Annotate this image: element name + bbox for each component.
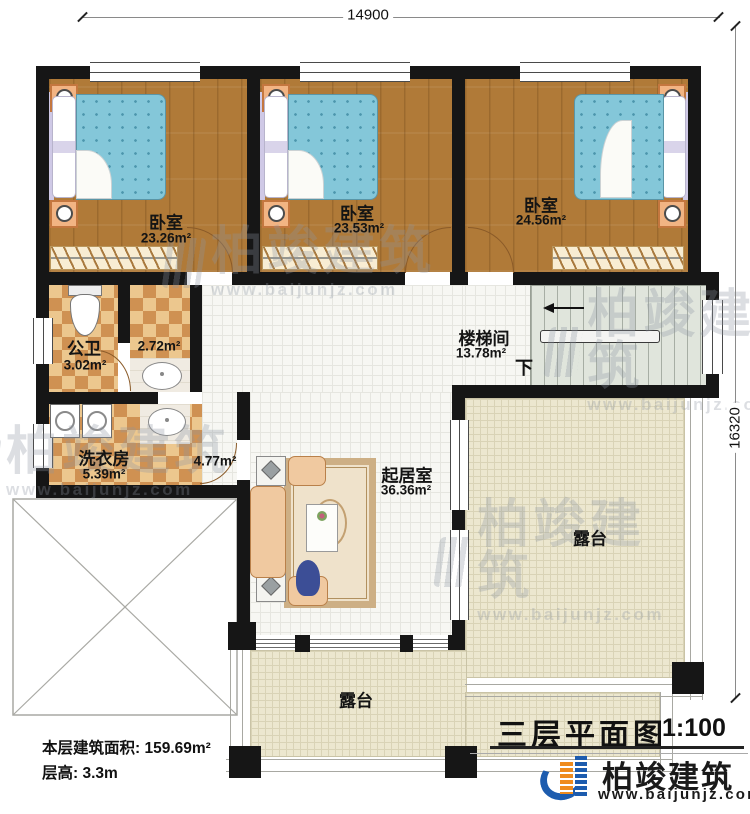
corridor-floor <box>202 285 465 392</box>
laundry-area: 5.39m² <box>83 467 126 482</box>
terrace-right-parapet-line2 <box>702 390 703 700</box>
wall-living-right-1 <box>452 392 465 420</box>
living-corner-column-left <box>228 622 256 650</box>
terrace-right-bottom-line <box>465 684 703 685</box>
coffee-table <box>306 504 338 552</box>
bedroom1-area: 23.26m² <box>141 231 191 246</box>
stairwell-area: 13.78m² <box>456 346 506 361</box>
logo-building-blue <box>575 756 587 796</box>
wall-bathroom-divider <box>118 285 130 343</box>
bedroom2-pillows <box>264 96 288 198</box>
floor-area-text: 本层建筑面积: 159.69m² <box>42 736 211 758</box>
brand-website: www.baijunjz.com <box>598 786 750 803</box>
brand-logo-icon <box>540 752 598 804</box>
vestibule-area: 2.72m² <box>138 339 181 354</box>
stairwell-window <box>702 300 723 374</box>
wall-vestibule-right <box>190 285 202 392</box>
living-window-1 <box>450 420 469 510</box>
terrace-bottom-label: 露台 <box>339 687 373 712</box>
stair-arrow-head <box>538 303 554 313</box>
bathroom-area: 3.02m² <box>64 358 107 373</box>
bedroom3-nightstand-bottom <box>658 200 686 228</box>
bedroom3-area: 24.56m² <box>516 213 566 228</box>
floor-plan-canvas: 柏竣建筑 www.baijunjz.com 柏竣建筑 www.baijunjz.… <box>0 0 750 814</box>
bedroom1-pillows <box>52 96 76 198</box>
bedroom2-window <box>300 62 410 82</box>
wall-laundry-top <box>36 392 158 404</box>
living-area: 36.36m² <box>381 483 431 498</box>
living-window-2 <box>450 530 469 620</box>
living-slider-2 <box>310 639 400 648</box>
floor-height-text: 层高: 3.3m <box>42 761 118 783</box>
vestibule-sink <box>142 362 182 390</box>
living-bottom-column-2 <box>400 635 413 652</box>
wall-bedrooms-bottom-2 <box>232 272 405 285</box>
sofa-main <box>250 486 286 578</box>
laundry-sink <box>148 408 186 436</box>
hallway-area: 4.77m² <box>194 454 237 469</box>
terrace-bottom-column-right <box>445 746 477 778</box>
roof-below-outline <box>12 498 238 716</box>
dimension-top-value: 14900 <box>343 7 393 24</box>
bedroom3-wardrobe <box>552 246 684 270</box>
logo-building-orange <box>560 762 573 794</box>
terrace-right-label: 露台 <box>573 525 607 550</box>
wall-bedroom-divider-2 <box>452 79 465 272</box>
wall-right-upper <box>688 66 701 285</box>
living-corner-column-right <box>448 635 465 650</box>
dimension-line-right <box>735 26 736 698</box>
stair-handrail <box>540 330 660 343</box>
wall-bedrooms-bottom-3 <box>450 272 468 285</box>
washing-machine-1 <box>50 404 80 438</box>
wall-bedroom-divider-1 <box>247 79 260 272</box>
armchair-top <box>288 456 326 486</box>
terrace-right-parapet-line <box>690 390 691 700</box>
bedroom2-nightstand-bottom <box>262 200 290 228</box>
bedroom2-area: 23.53m² <box>334 221 384 236</box>
stair-direction-label: 下 <box>515 354 533 380</box>
person-figure <box>296 560 320 596</box>
living-bottom-column-1 <box>295 635 310 652</box>
terrace-right-column <box>672 662 704 694</box>
title-underline-thick <box>490 746 744 749</box>
terrace-bottom-column-left <box>229 746 261 778</box>
dimension-line-top <box>82 17 720 18</box>
watermark-logo-icon <box>0 438 2 488</box>
living-slider-1 <box>256 639 295 648</box>
bathroom-window <box>33 318 53 364</box>
wall-living-left-upper <box>237 392 250 440</box>
wall-stair-bottom <box>452 385 719 398</box>
washing-machine-2 <box>82 404 112 438</box>
wall-bedrooms-bottom-4 <box>513 272 719 285</box>
wall-bedrooms-bottom-1 <box>36 272 187 285</box>
terrace-bottom-left-line2 <box>242 650 243 755</box>
bedroom1-wardrobe <box>50 246 178 270</box>
bedroom1-nightstand-bottom <box>50 200 78 228</box>
wall-living-right-2 <box>452 510 465 530</box>
plan-scale: 1:100 <box>662 714 726 743</box>
living-slider-3 <box>413 639 448 648</box>
bathroom-label: 公卫 <box>67 335 101 360</box>
wall-laundry-bottom <box>36 485 250 498</box>
corner-table-top <box>256 456 286 486</box>
stair-arrow-tail <box>550 307 584 309</box>
bedroom3-pillows <box>662 96 686 198</box>
bedroom2-wardrobe <box>262 246 378 270</box>
bedroom1-window <box>90 62 200 82</box>
bedroom3-window <box>520 62 630 82</box>
dimension-right-value: 16320 <box>727 403 744 453</box>
terrace-right-bottom-line2 <box>465 696 703 697</box>
